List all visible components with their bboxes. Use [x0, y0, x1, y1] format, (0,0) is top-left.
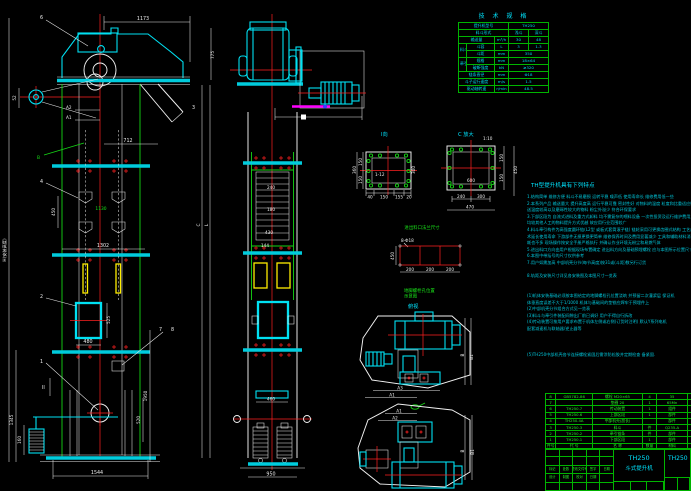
tech-r9-unit: m/s: [495, 79, 509, 86]
tech-group-chain: 牵引链: [459, 58, 467, 72]
dim-i300: 300: [411, 166, 416, 174]
bolt-caption-2: 示意图: [404, 293, 418, 300]
dim-r200c: 200: [446, 267, 454, 272]
dim-52: 52: [12, 95, 17, 101]
dim-r450: 450: [390, 252, 395, 260]
feature-line: 7.用户如需加高 中部机壳分节(每节高度)按31或(斗距)数另行订货: [527, 260, 691, 267]
dim-520: 520: [136, 416, 141, 424]
detail-I-title: I向: [381, 130, 388, 138]
sig-role: 校对: [573, 474, 587, 481]
bolt-holes-label: 8-Φ18: [401, 238, 414, 243]
part-label-7: 7: [159, 327, 162, 333]
tech-r9-value: 1.5: [509, 79, 549, 86]
dim-i20: 20: [406, 195, 412, 200]
dim-180: 180: [267, 207, 275, 212]
tech-r1-value: TH250: [509, 23, 549, 30]
tech-r10-label: 驱动轴转速: [459, 86, 495, 93]
dim-pvB: B: [460, 353, 465, 356]
tech-table-title: 技 术 规 格: [458, 11, 550, 20]
feature-line: 配套减速机与联轴器/逆止器等: [527, 326, 691, 333]
sig-label: 标记: [546, 466, 560, 473]
flange-detail-I: I向 1-12 150 150 360 300 40 150 155 20: [352, 130, 417, 200]
plan-top-caption: 俯视: [408, 302, 418, 310]
feature-line: 耗也不多 现场操作按安全手册严格执行 并确认作业环境无粉尘和易燃气体: [527, 240, 691, 247]
title-block: 标记 处数 更改文件号 签字 日期 设计 制图 校对 日期 TH250 斗式提升…: [545, 448, 691, 491]
tech-r3-b: 48: [529, 37, 549, 44]
dim-pbA1: A1: [396, 409, 402, 414]
dim-430: 430: [265, 230, 273, 235]
cad-canvas: H(安装高度): [0, 0, 691, 491]
sig-roles-row: 设计 制图 校对 日期: [546, 474, 613, 482]
tech-r8-unit: mm: [495, 72, 509, 79]
parts-list: 8GB5782-86螺栓 M20×65435 7垫圈 20165Mn0.03 6…: [545, 393, 691, 450]
side-elevation-view: 240 180 430 144 460 950: [230, 14, 366, 478]
sig-label: 处数: [560, 466, 574, 473]
tech-r5-label: 斗距: [467, 51, 495, 58]
title-block-center: TH250 斗式提升机: [614, 449, 665, 490]
sig-role: 设计: [546, 474, 560, 481]
dim-i150b: 150: [358, 176, 363, 184]
feature-line: [527, 332, 691, 339]
sig-labels-row: 标记 处数 更改文件号 签字 日期: [546, 466, 613, 474]
sig-label: 日期: [600, 466, 613, 473]
dim-i150c: 150: [380, 195, 388, 200]
bolt-caption-1: 地脚螺栓孔位置: [404, 287, 435, 294]
model-number: TH250: [614, 454, 664, 462]
label-A2: A2: [66, 105, 72, 110]
dim-i360: 360: [352, 166, 357, 174]
dim-pbB1: B1: [470, 449, 475, 455]
dim-460: 460: [267, 397, 275, 402]
tech-r2-label: 料斗形式: [459, 30, 509, 37]
dim-i150a: 150: [358, 158, 363, 166]
technical-data-table: 技 术 规 格 提升机型号TH250 料斗形式浅斗深斗 输送量m³/h3048 …: [458, 11, 550, 93]
dim-480: 480: [83, 339, 92, 345]
dim-950: 950: [266, 472, 275, 478]
label-A1: A1: [66, 115, 72, 120]
dim-c470: 470: [466, 205, 474, 210]
part-label-6: 6: [40, 15, 43, 21]
dim-1130: 1130: [95, 206, 106, 212]
dim-C: C: [196, 223, 201, 226]
tech-group-bucket: 料斗: [459, 44, 467, 58]
dim-c240: 240: [457, 194, 465, 199]
dim-c600: 600: [467, 178, 475, 183]
plan-view-top: 俯视 B B1 A3 A1: [360, 302, 474, 398]
tech-r5-unit: mm: [495, 51, 509, 58]
tech-r2-b: 深斗: [529, 30, 549, 37]
tech-r6-value: 18×64: [509, 58, 549, 65]
dim-160: 160: [17, 436, 22, 444]
tech-r5-value: 350: [509, 51, 549, 58]
tech-r6-unit: mm: [495, 58, 509, 65]
dim-L: L: [204, 223, 209, 226]
detail-I-inner: 1-12: [375, 172, 385, 177]
feature-line: [527, 286, 691, 293]
sig-role: 日期: [587, 474, 601, 481]
tech-r6-label: 规格: [467, 58, 495, 65]
tech-r4-label: 斗容: [467, 44, 495, 51]
dim-1544: 1544: [91, 470, 103, 476]
tech-r3-label: 输送量: [459, 37, 495, 44]
drawing-number: TH250: [665, 449, 690, 462]
flange-caption: 进出料口法兰尺寸: [404, 224, 440, 231]
dim-1950: 1950: [143, 390, 148, 401]
dim-712: 712: [123, 138, 132, 144]
dim-1345: 1345: [9, 414, 14, 425]
feature-line: (5)TH250中部机壳各节连接螺栓紧固后需涂防松胶并定期检查 备紧固.: [527, 352, 691, 359]
part-label-8: 8: [171, 327, 174, 333]
tech-r8-label: 链条直径: [459, 72, 495, 79]
feature-line: [527, 339, 691, 346]
product-name: 斗式提升机: [614, 464, 664, 472]
dim-pvB1: B1: [469, 354, 474, 360]
detail-C-title: C 放大: [458, 130, 474, 138]
tech-r9-label: 斗子运行速度: [459, 79, 495, 86]
dim-c450: 450: [513, 166, 518, 174]
dim-pbA2: A2: [392, 416, 398, 421]
dim-pvA3: A3: [397, 386, 403, 391]
features-notes-block: TH型提升机具有下列特点 1.结构简单 维修方便 料斗不易磨损 运转平稳 噪声低…: [527, 181, 691, 397]
feature-line: (2)中部机壳分节组合方式见一览表: [527, 306, 691, 313]
tech-r4-b: 1.3: [529, 44, 549, 51]
dim-pvA1: A1: [389, 393, 395, 398]
dim-240: 240: [267, 185, 275, 190]
tech-r1-label: 提升机型号: [459, 23, 509, 30]
features-title: TH型提升机具有下列特点: [531, 181, 691, 189]
dim-c150a: 150: [499, 154, 504, 162]
dim-450: 450: [51, 208, 56, 216]
dim-i155: 155: [395, 195, 403, 200]
feature-line: (1)机体安装基础必须按本图给定的地脚螺栓孔位置浇筑 并预留二次灌浆层 保证机: [527, 293, 691, 300]
title-block-right: TH250: [665, 449, 690, 490]
tech-r2-a: 浅斗: [509, 30, 529, 37]
plan-view-bottom: A1 A2 B B1: [358, 403, 475, 488]
flange-detail-C: C 放大 1:10 600 240 300 470 150 150 450 进出…: [404, 130, 518, 231]
dim-144: 144: [261, 243, 269, 248]
tech-r10-value: 48.5: [509, 86, 549, 93]
detail-C-scale: 1:10: [483, 136, 493, 141]
feature-line: 1.结构简单 维修方便 料斗不易磨损 运转平稳 噪声低 使用寿命长 维修费用低一…: [527, 194, 691, 201]
dim-1302: 1302: [97, 243, 109, 249]
dim-r200a: 200: [406, 267, 414, 272]
tech-r4-a: 3: [509, 44, 529, 51]
anchor-bolt-detail: 8-Φ18 450 200 200 200 地脚螺栓孔位置 示意图: [390, 238, 462, 300]
dim-775: 775: [210, 51, 215, 59]
dim-c300: 300: [477, 194, 485, 199]
section-II: II: [42, 385, 45, 391]
part-label-3: 3: [192, 105, 195, 111]
dim-r200b: 200: [426, 267, 434, 272]
tech-r3-unit: m³/h: [495, 37, 509, 44]
feature-line: [527, 359, 691, 366]
tech-r10-unit: r/min: [495, 86, 509, 93]
feature-line: (4)传动装置可按用户要求布置于机体左侧或右侧(订货时注明) 默认Y系列电机: [527, 319, 691, 326]
tech-r8-value: Φ18: [509, 72, 549, 79]
sig-label: 更改文件号: [573, 466, 587, 473]
part-label-1: 1: [40, 359, 43, 365]
tech-r3-a: 30: [509, 37, 529, 44]
tech-r4-unit: L: [495, 44, 509, 51]
part-label-2: 2: [40, 294, 43, 300]
label-B: B: [37, 155, 40, 161]
dim-i40: 40: [367, 195, 373, 200]
tech-r7-label: 破断强度: [467, 65, 495, 72]
tech-r7-value: ≥320: [509, 65, 549, 72]
part-label-4: 4: [40, 179, 43, 185]
feature-line: 4.料斗牵引构件为高强度圆环链(L2型 或板式套筒滚子链) 链轮采用可更换齿圈式…: [527, 227, 691, 234]
feature-line: 送温度较高以及磨琢性较大的物料 粉尘外溢少 符合环保要求: [527, 207, 691, 214]
feature-line: [527, 280, 691, 287]
tech-r7-unit: kN: [495, 65, 509, 72]
feature-line: 8.轨距及安装尺寸详见各安装图及本图尺寸一览表: [527, 273, 691, 280]
dim-c150b: 150: [499, 174, 504, 182]
dim-pbB: B: [460, 449, 465, 452]
left-elevation-view: H(安装高度): [1, 14, 255, 479]
dim-1173: 1173: [137, 16, 149, 22]
dim-H: H(安装高度): [1, 238, 8, 262]
dim-525: 525: [106, 316, 111, 324]
feature-line: 均较其他人工的物料提升方式优越 故应用行业范围较广: [527, 220, 691, 227]
title-block-signature-grid: 标记 处数 更改文件号 签字 日期 设计 制图 校对 日期: [546, 449, 614, 490]
feature-line: 6.本图中带括号的尺寸仅供参考: [527, 253, 691, 260]
sig-label: 签字: [587, 466, 601, 473]
sig-role: 制图: [560, 474, 574, 481]
